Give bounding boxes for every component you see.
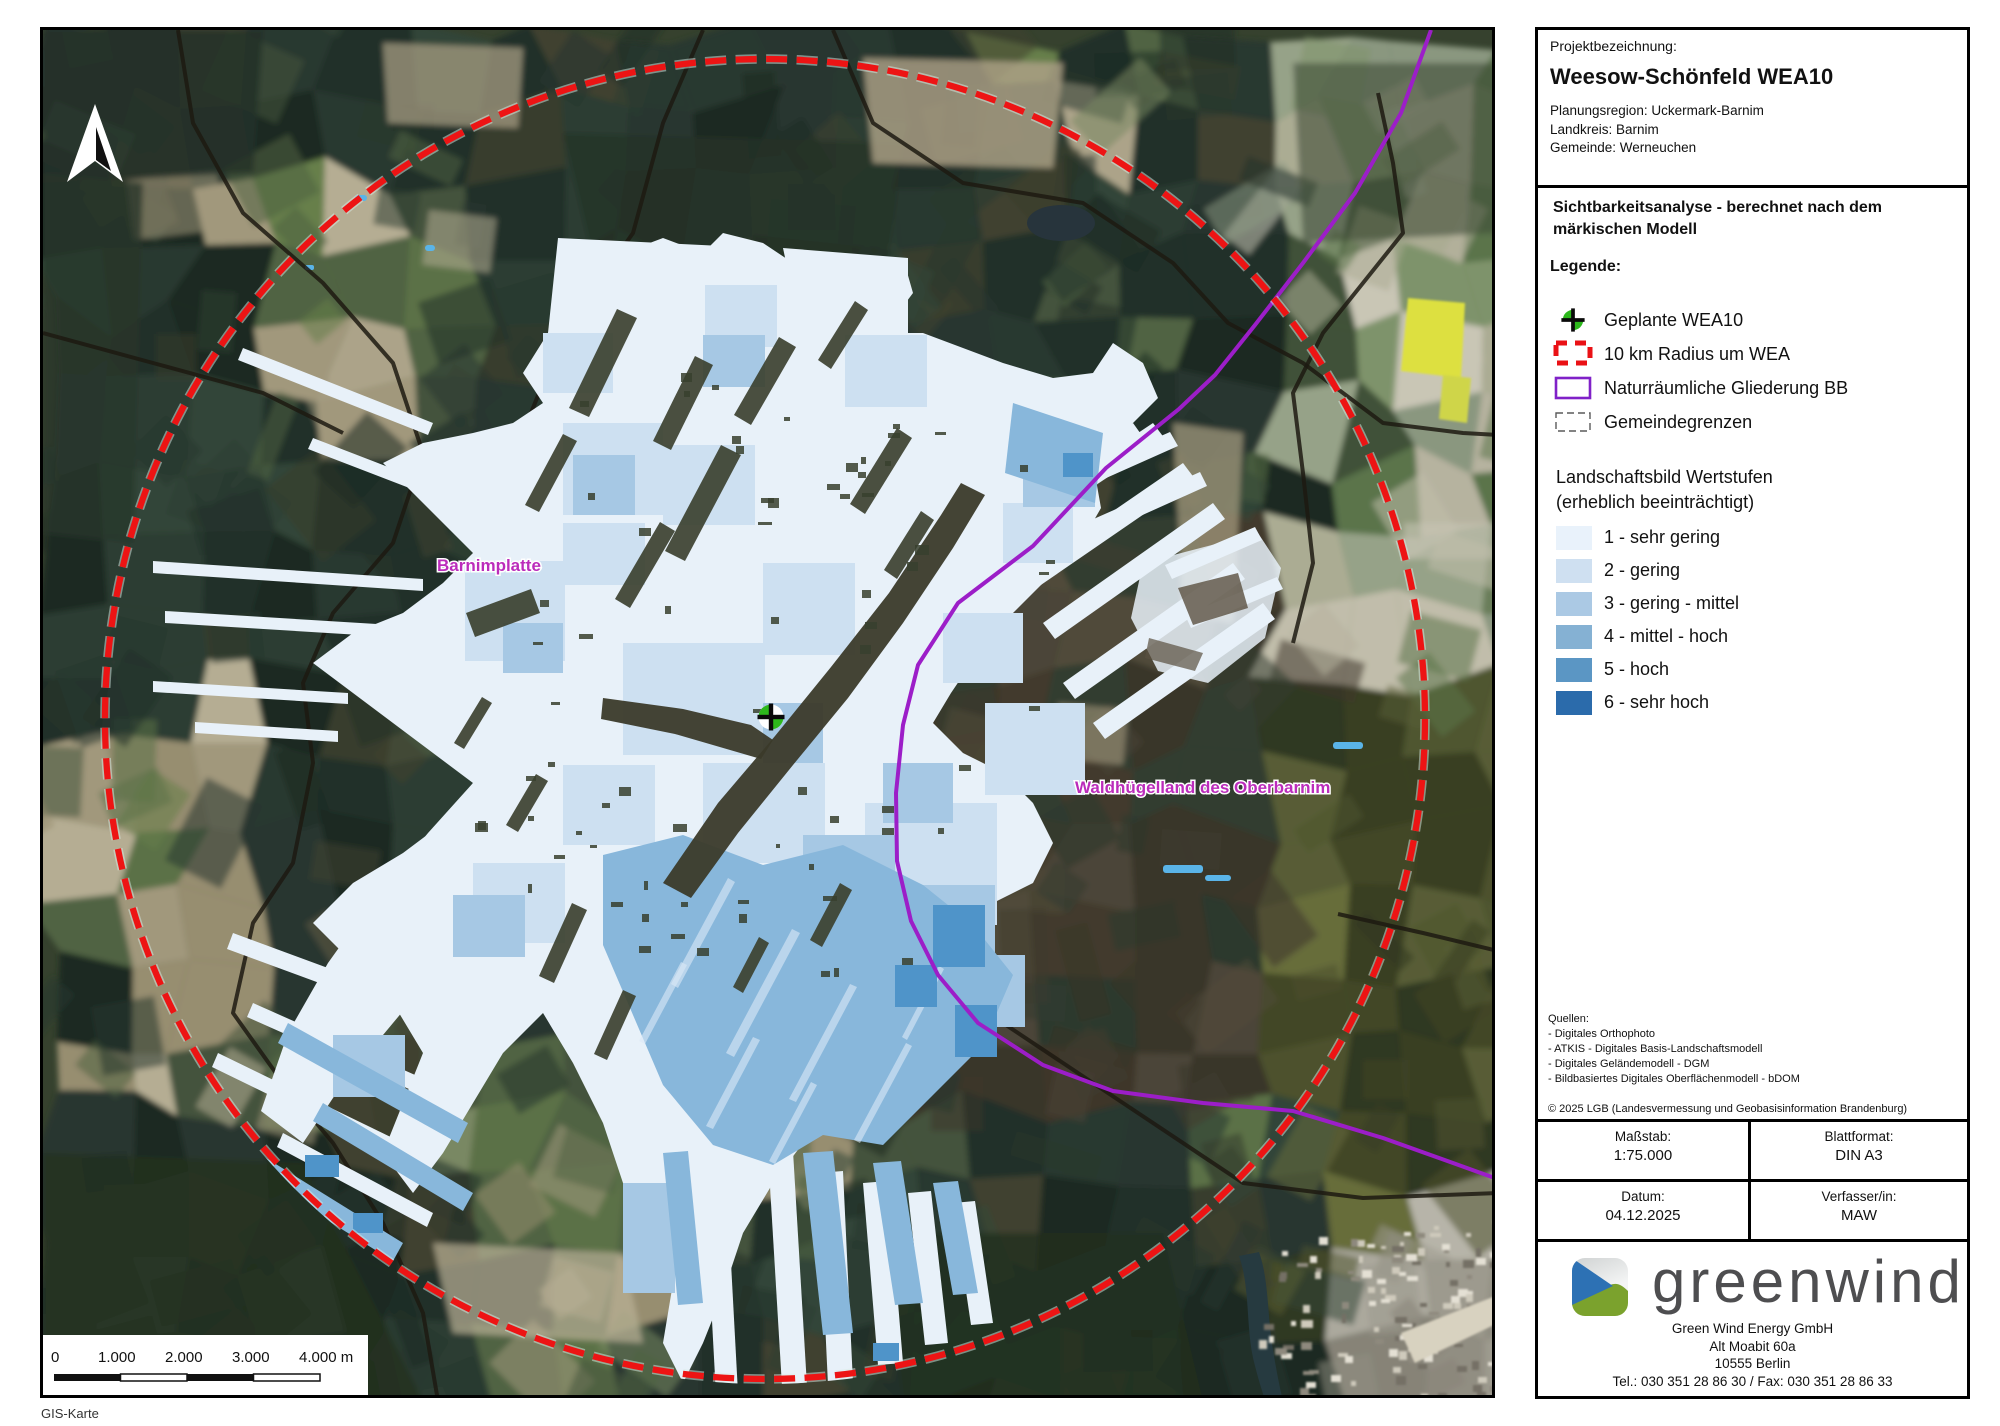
svg-text:2.000: 2.000 [165,1349,203,1366]
svg-text:3.000: 3.000 [232,1349,270,1366]
svg-text:Barnimplatte: Barnimplatte [437,556,541,575]
svg-text:0: 0 [51,1349,59,1366]
svg-text:1.000: 1.000 [98,1349,136,1366]
svg-text:4.000 m: 4.000 m [299,1349,353,1366]
svg-text:Waldhügelland des Oberbarnim: Waldhügelland des Oberbarnim [1075,778,1330,797]
